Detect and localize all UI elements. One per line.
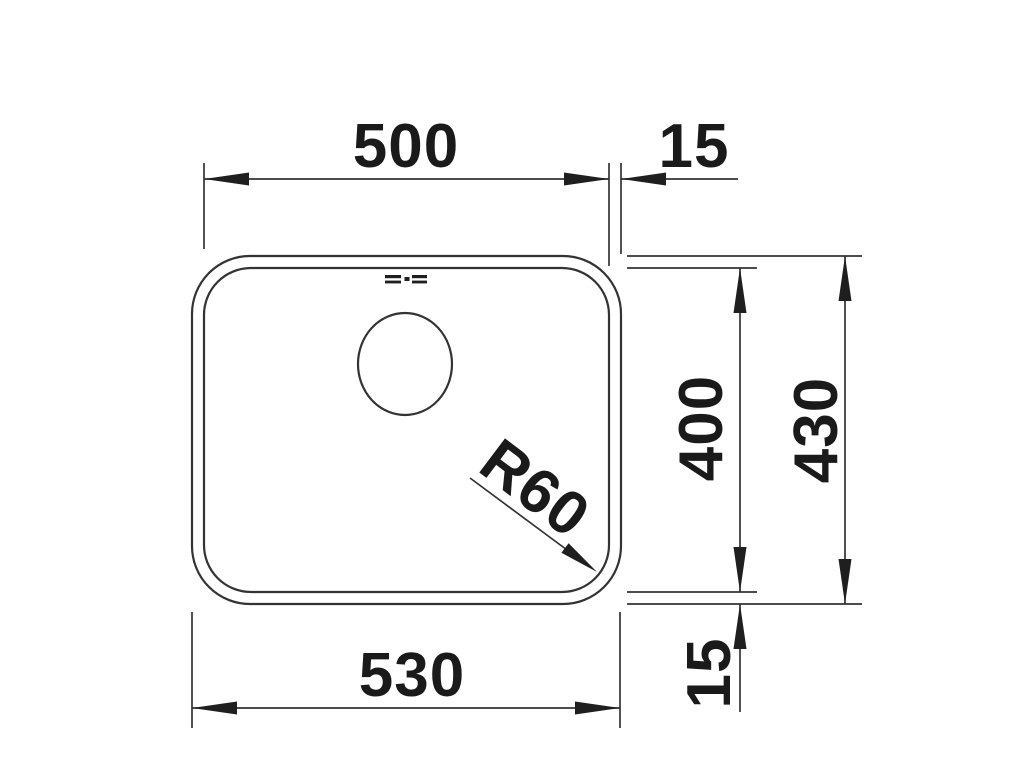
dim-label-rim-offset-bottom: 15	[675, 638, 744, 709]
technical-drawing-svg: 500 15 400 430	[0, 0, 1024, 768]
corner-radius-callout: R60	[468, 426, 603, 572]
arrow-down-icon	[734, 547, 747, 592]
arrow-right-icon	[575, 702, 620, 715]
arrow-up-icon	[839, 256, 852, 301]
sink-body	[192, 256, 621, 604]
dim-label-corner-radius: R60	[468, 426, 603, 551]
sink-dimension-drawing: 500 15 400 430	[0, 0, 1024, 768]
arrow-right-icon	[564, 173, 609, 186]
arrow-down-icon	[839, 559, 852, 604]
dimension-inner-depth: 400	[667, 268, 747, 592]
dimension-rim-offset-right: 15	[621, 112, 738, 254]
sink-bowl-outline	[204, 268, 609, 592]
dim-label-inner-width: 500	[353, 112, 459, 181]
dimension-inner-width: 500	[204, 112, 609, 266]
dim-label-outer-depth: 430	[782, 377, 851, 483]
dimension-outer-depth: 430	[782, 256, 852, 604]
arrow-diagonal-icon	[561, 543, 597, 572]
dim-label-outer-width: 530	[359, 641, 465, 710]
drain-hole-circle	[358, 313, 452, 415]
overflow-mark-icon	[385, 275, 427, 283]
dim-label-inner-depth: 400	[667, 375, 736, 481]
arrow-left-icon	[204, 173, 249, 186]
dim-label-rim-offset-right: 15	[659, 112, 730, 181]
arrow-up-icon	[734, 268, 747, 313]
sink-outer-outline	[192, 256, 621, 604]
arrow-left-icon	[192, 702, 237, 715]
dimension-outer-width: 530	[192, 612, 620, 728]
dimension-rim-offset-bottom: 15	[675, 604, 747, 712]
